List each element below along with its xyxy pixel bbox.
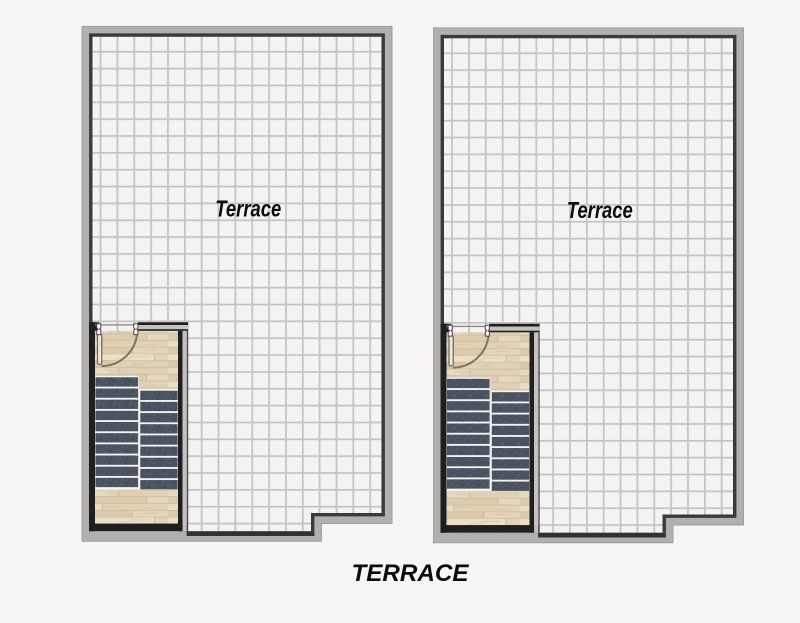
svg-text:TERRACE: TERRACE [352, 560, 470, 587]
svg-text:Terrace: Terrace [215, 196, 281, 222]
svg-text:Terrace: Terrace [567, 197, 633, 223]
